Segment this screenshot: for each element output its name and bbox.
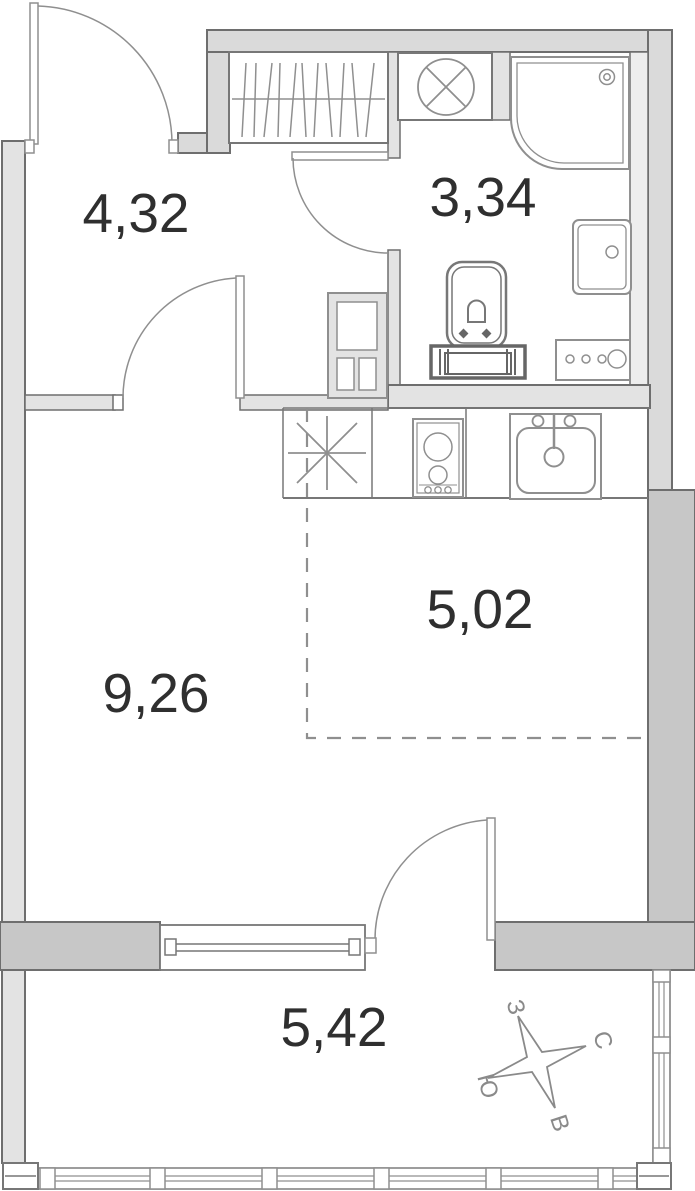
window-post-right	[349, 939, 360, 955]
wall-right-upper	[648, 30, 672, 490]
wardrobe-outline	[229, 52, 388, 143]
entrance-door-jamb-right	[169, 140, 178, 153]
balcony-glazing-right-post-low	[653, 1148, 670, 1163]
washbasin	[573, 220, 631, 294]
living-room-door-swing-arc	[123, 278, 236, 398]
compass-south-label: Ю	[471, 1071, 503, 1101]
balcony-door-jamb-left	[365, 938, 376, 953]
kitchen-sink-outer	[510, 414, 601, 499]
balcony-glazing-bottom-post-1	[40, 1168, 55, 1189]
shower-outer	[511, 57, 629, 169]
floor-plan-drawing: З С Ю В 4,32 3,34 9,26 5,02 5,42	[0, 0, 695, 1191]
balcony-glazing-bottom-post-2	[150, 1168, 165, 1189]
living-room-area-label: 9,26	[102, 662, 209, 724]
balcony-glazing-bottom-post-6	[598, 1168, 613, 1189]
bathroom-door-leaf	[292, 152, 388, 160]
duct-pane-large	[337, 302, 377, 350]
wall-living-bottom-left	[0, 922, 160, 970]
entrance-door	[25, 3, 178, 153]
wall-left-exterior	[2, 141, 25, 1163]
living-room-door-leaf	[236, 276, 244, 398]
balcony-area-label: 5,42	[280, 996, 387, 1058]
toilet-bowl-outer	[447, 262, 506, 348]
window-frame	[160, 925, 365, 970]
balcony-glazing-bottom-post-4	[374, 1168, 389, 1189]
bathroom-door-swing-arc	[293, 158, 388, 253]
floor-plan: З С Ю В 4,32 3,34 9,26 5,02 5,42	[0, 0, 695, 1191]
duct-pane-small-right	[359, 358, 376, 390]
wall-hall-partition-jamb	[113, 395, 123, 410]
wardrobe	[229, 52, 388, 143]
duct-pane-small-left	[337, 358, 354, 390]
compass-west-label: З	[501, 997, 531, 1018]
balcony-glazing-right-post-top	[653, 970, 670, 982]
wall-right-lower	[648, 490, 695, 970]
bathroom-area-label: 3,34	[429, 166, 536, 228]
bathroom-vanity-outline	[556, 340, 630, 380]
balcony-door	[365, 818, 495, 953]
wall-bathroom-right-furring	[630, 52, 648, 408]
washbasin-outer	[573, 220, 631, 294]
wall-living-bottom-right	[495, 922, 695, 970]
bathroom-vanity	[556, 340, 630, 380]
balcony-glazing-bottom-post-5	[486, 1168, 501, 1189]
compass-rose: З С Ю В	[471, 997, 618, 1135]
toilet	[431, 262, 525, 378]
entrance-door-leaf	[30, 3, 38, 144]
balcony-glazing-bottom-post-3	[262, 1168, 277, 1189]
wall-top-exterior	[207, 30, 672, 52]
bathroom-door	[292, 152, 388, 253]
entrance-door-jamb-left	[25, 140, 34, 153]
compass-east-label: В	[544, 1111, 575, 1135]
wall-washer-divider	[492, 52, 510, 120]
living-room-door	[123, 276, 244, 398]
kitchen-zone-area-label: 5,02	[426, 578, 533, 640]
balcony-door-leaf	[487, 818, 495, 940]
window-post-left	[165, 939, 176, 955]
kitchen-sink	[510, 414, 601, 499]
cooktop	[413, 419, 463, 497]
balcony-glazing-right-post-mid	[653, 1037, 670, 1053]
appliance-asterisk-symbol	[288, 416, 366, 490]
ventilation-duct	[328, 293, 387, 398]
washing-machine	[398, 53, 492, 120]
compass-north-label: С	[587, 1028, 618, 1053]
wall-hall-partition-left	[25, 395, 115, 410]
hallway-area-label: 4,32	[82, 182, 189, 244]
wall-bathroom-partition-lower	[388, 250, 400, 387]
entrance-door-swing-arc	[38, 6, 172, 144]
shower-tray	[511, 57, 629, 169]
wall-bathroom-bottom	[388, 385, 650, 408]
living-room-window	[160, 925, 365, 970]
balcony-door-swing-arc	[375, 820, 487, 940]
